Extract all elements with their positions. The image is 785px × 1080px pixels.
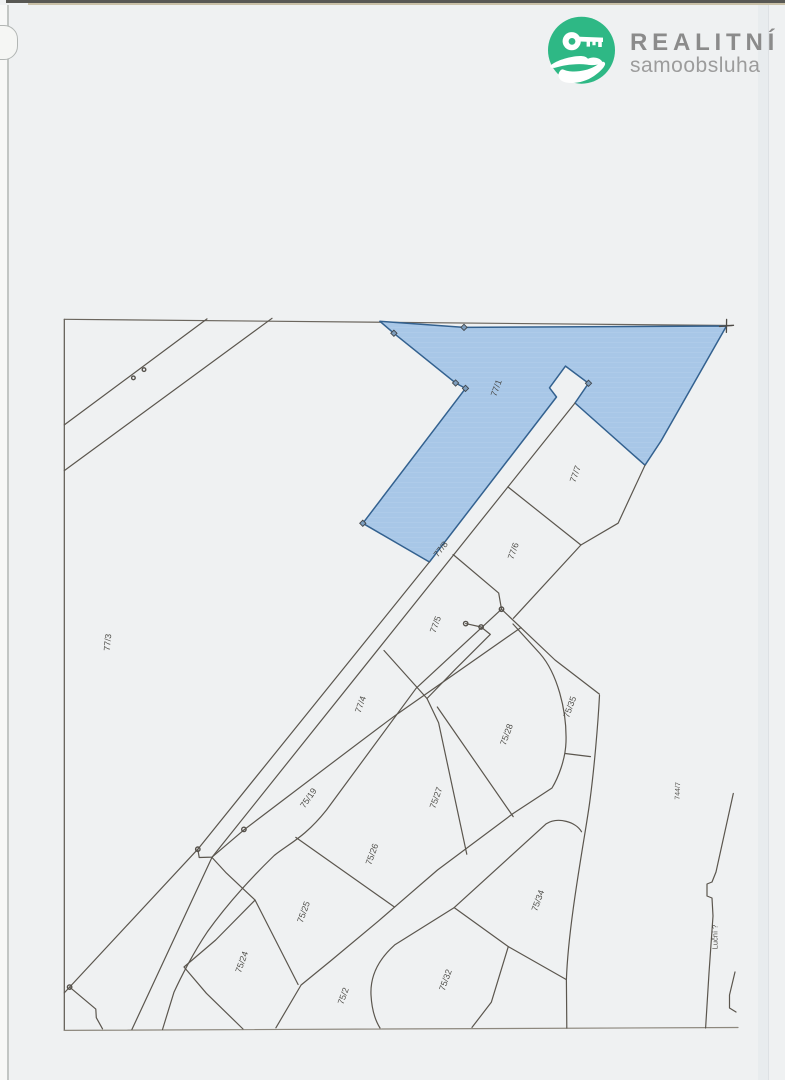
svg-text:75/35: 75/35 <box>561 695 578 719</box>
svg-text:75/28: 75/28 <box>498 722 515 746</box>
svg-text:75/2: 75/2 <box>336 986 351 1006</box>
svg-text:77/4: 77/4 <box>353 695 368 715</box>
svg-text:75/26: 75/26 <box>363 842 380 866</box>
svg-text:75/25: 75/25 <box>295 900 312 924</box>
svg-text:75/24: 75/24 <box>233 950 250 974</box>
svg-text:77/6: 77/6 <box>506 541 521 561</box>
svg-text:75/34: 75/34 <box>529 888 546 912</box>
svg-text:75/27: 75/27 <box>427 786 444 810</box>
svg-text:77/5: 77/5 <box>428 615 443 635</box>
svg-text:Luční ?: Luční ? <box>711 925 720 950</box>
svg-text:77/7: 77/7 <box>568 464 583 484</box>
svg-text:744/7: 744/7 <box>673 782 682 800</box>
svg-text:77/3: 77/3 <box>102 633 113 651</box>
svg-text:75/19: 75/19 <box>298 786 319 810</box>
svg-text:75/32: 75/32 <box>437 968 454 992</box>
